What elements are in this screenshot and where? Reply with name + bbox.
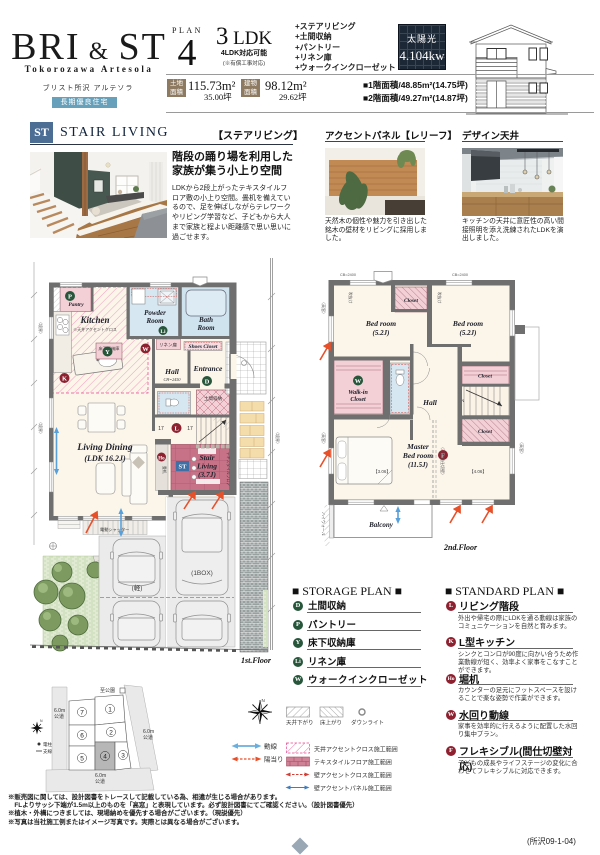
svg-text:電柱: 電柱 (43, 741, 52, 748)
svg-text:Ho: Ho (158, 457, 165, 462)
svg-text:Hall: Hall (422, 398, 438, 407)
svg-text:CB=2400: CB=2400 (452, 273, 468, 277)
svg-text:壁アクセントクロス施工範囲: 壁アクセントクロス施工範囲 (314, 772, 392, 780)
svg-text:動線: 動線 (264, 742, 278, 751)
svg-text:Entrance: Entrance (193, 364, 223, 373)
svg-text:〈高窓〉: 〈高窓〉 (519, 440, 525, 456)
svg-text:(5.2J): (5.2J) (460, 329, 477, 337)
svg-text:天井アクセントクロス施工範囲: 天井アクセントクロス施工範囲 (314, 746, 398, 754)
svg-text:2: 2 (109, 730, 113, 737)
svg-text:公道: 公道 (54, 713, 64, 720)
svg-text:Bed room: Bed room (452, 319, 483, 328)
svg-text:ハイウォール: ハイウォール (321, 512, 327, 536)
svg-text:Master: Master (406, 442, 429, 451)
svg-text:17: 17 (187, 426, 193, 432)
svg-text:陽当り: 陽当り (264, 755, 284, 764)
svg-text:Bed room: Bed room (365, 319, 396, 328)
svg-text:〈高窓〉: 〈高窓〉 (321, 300, 327, 316)
svg-text:Balcony: Balcony (368, 521, 394, 529)
svg-text:(3.7J): (3.7J) (198, 470, 217, 479)
svg-text:(軽): (軽) (132, 583, 143, 592)
svg-text:(1BOX): (1BOX) (191, 570, 213, 577)
svg-text:Closet: Closet (478, 429, 493, 435)
svg-text:吹抜け: 吹抜け (437, 292, 442, 304)
svg-text:N: N (40, 719, 43, 723)
svg-text:P: P (68, 294, 72, 301)
svg-text:畳机: 畳机 (162, 466, 167, 474)
svg-text:Walk-in: Walk-in (348, 390, 368, 396)
svg-text:床上がり: 床上がり (320, 719, 342, 727)
svg-text:天井下がり: 天井下がり (286, 719, 314, 727)
svg-text:〈境界〉: 〈境界〉 (38, 320, 44, 336)
svg-text:公道: 公道 (95, 778, 105, 785)
svg-text:リネン庫: リネン庫 (159, 342, 177, 349)
svg-text:Closet: Closet (350, 397, 366, 403)
svg-text:土間収納: 土間収納 (204, 395, 222, 402)
svg-text:CH=2450: CH=2450 (163, 377, 181, 382)
svg-text:支線: 支線 (43, 748, 52, 755)
svg-text:Shoes Closet: Shoes Closet (189, 344, 218, 350)
svg-text:〈境界〉: 〈境界〉 (275, 430, 281, 446)
svg-text:4: 4 (103, 754, 107, 761)
svg-text:(5.2J): (5.2J) (373, 329, 390, 337)
svg-text:3: 3 (121, 753, 125, 760)
svg-text:※天井アクセントクロス: ※天井アクセントクロス (73, 326, 117, 332)
svg-text:公道: 公道 (143, 734, 153, 741)
svg-text:6: 6 (80, 733, 84, 740)
svg-text:〈可動間仕切壁〉: 〈可動間仕切壁〉 (440, 445, 446, 477)
svg-text:Room: Room (145, 317, 164, 325)
svg-text:5: 5 (80, 756, 84, 763)
svg-text:〈高窓〉: 〈高窓〉 (321, 430, 327, 446)
svg-text:電動シャッター: 電動シャッター (100, 526, 129, 533)
svg-text:至公園: 至公園 (100, 688, 115, 694)
svg-text:ST: ST (179, 464, 188, 471)
svg-text:K: K (62, 376, 67, 383)
svg-text:7: 7 (80, 710, 84, 717)
svg-text:Bed room: Bed room (402, 451, 433, 460)
svg-text:Living Dining: Living Dining (76, 443, 132, 453)
svg-text:壁アクセントパネル施工範囲: 壁アクセントパネル施工範囲 (314, 785, 392, 793)
svg-text:〈境界〉: 〈境界〉 (38, 420, 44, 436)
svg-text:N: N (262, 698, 265, 703)
svg-text:テキスタイルフロア施工範囲: テキスタイルフロア施工範囲 (314, 759, 392, 767)
svg-text:Pantry: Pantry (68, 302, 84, 308)
svg-text:(LDK 16.2J): (LDK 16.2J) (84, 454, 126, 463)
svg-text:(11.5J): (11.5J) (408, 461, 428, 469)
svg-text:W: W (142, 346, 149, 353)
svg-text:【4.06】: 【4.06】 (469, 469, 487, 474)
svg-text:Room: Room (196, 324, 215, 332)
svg-text:CB=2400: CB=2400 (340, 273, 356, 277)
svg-text:Kitchen: Kitchen (79, 315, 109, 325)
svg-text:D: D (205, 379, 210, 386)
svg-text:17: 17 (158, 426, 164, 432)
svg-text:Closet: Closet (404, 298, 419, 304)
svg-text:Powder: Powder (144, 309, 166, 317)
svg-text:Bath: Bath (198, 316, 213, 324)
svg-text:Hall: Hall (164, 367, 180, 376)
svg-text:ダウンライト: ダウンライト (351, 719, 384, 727)
svg-text:1: 1 (108, 707, 112, 714)
svg-text:Closet: Closet (478, 374, 493, 380)
svg-text:Y: Y (105, 349, 110, 356)
svg-text:W: W (355, 378, 362, 385)
svg-text:L: L (174, 426, 179, 433)
svg-text:【3.06】: 【3.06】 (373, 469, 391, 474)
svg-text:吹抜け: 吹抜け (348, 292, 353, 304)
svg-text:Li: Li (160, 329, 166, 335)
